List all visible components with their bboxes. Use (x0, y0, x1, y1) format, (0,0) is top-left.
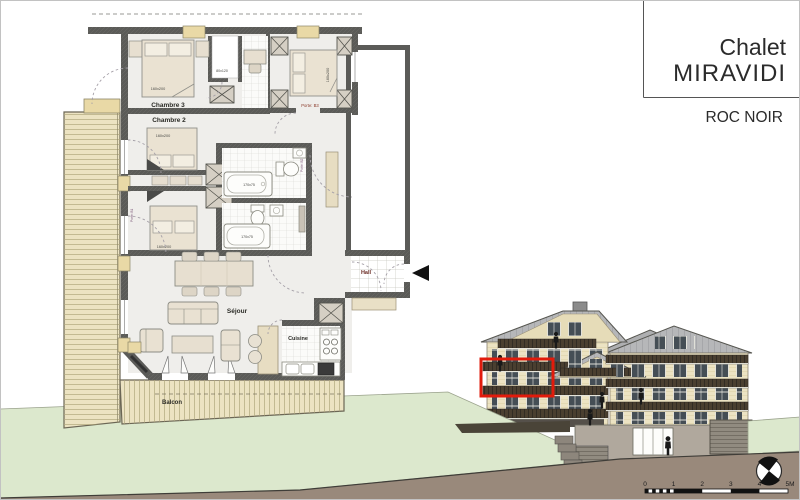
scale-tick-3: 3 (729, 481, 733, 488)
storage-room: 80x120 (210, 36, 238, 103)
room-label-chambre2: Chambre 2 (152, 117, 186, 124)
plan-canvas: 0 1 2 3 4 5M Balcon (0, 0, 800, 500)
dining-table (175, 252, 253, 296)
wardrobe-icon (271, 90, 288, 108)
nightstand (196, 41, 209, 57)
corridor-cabinet (326, 152, 338, 207)
right-band-2 (606, 379, 748, 388)
sink-unit (282, 362, 340, 376)
right-windows-rowB (616, 388, 742, 400)
sink-icon (293, 148, 306, 158)
right-gable-windows (655, 336, 695, 349)
toilet-icon (276, 162, 299, 176)
nightstand (129, 41, 142, 57)
title-block: Chalet MIRAVIDI ROC NOIR (644, 0, 800, 126)
entrance-arrow-icon (412, 265, 429, 281)
bed-dim-label: 160x200 (156, 134, 171, 138)
desk (244, 50, 266, 64)
project-name: MIRAVIDI (673, 60, 786, 87)
desk-nook (242, 36, 268, 108)
left-balcony (64, 99, 120, 428)
chair (249, 64, 261, 73)
cooktop-icon (320, 328, 341, 360)
double-bed (150, 206, 197, 250)
right-band-1 (606, 355, 748, 364)
scale-tick-0: 0 (643, 481, 647, 488)
floor-plan: Balcon (64, 14, 429, 428)
balcony-planter (84, 99, 120, 113)
slatted-gate (710, 420, 752, 454)
door-gap (296, 108, 320, 113)
bed-dim-label: 160x200 (151, 87, 166, 91)
drawing-sheet: 0 1 2 3 4 5M Balcon (0, 0, 800, 500)
door-label-b1: Porte: B1 (130, 208, 134, 222)
room-hall: Hall (351, 256, 404, 310)
room-label-balcon: Balcon (162, 400, 182, 406)
balcony-band-3 (483, 386, 608, 395)
scale-tick-2: 2 (700, 481, 704, 488)
grass-right (748, 417, 800, 454)
radiator (299, 206, 305, 232)
bathroom-1: 170x75 (222, 148, 306, 198)
attic-windows (540, 322, 582, 336)
tub-dim-label: 170x75 (241, 235, 253, 239)
wardrobe-icon (210, 86, 234, 103)
room-label-chambre3: Chambre 3 (151, 102, 185, 109)
toilet-icon (251, 205, 264, 226)
bed-dim-label: 160x200 (157, 245, 172, 249)
attic-balcony (498, 339, 596, 348)
bed-dim-label: 160x200 (326, 68, 330, 83)
right-band-3 (606, 402, 748, 411)
scale-tick-1: 1 (672, 481, 676, 488)
tub-dim-label: 170x75 (243, 183, 255, 187)
bar-stool (249, 335, 262, 348)
shower-dim-label: 80x120 (216, 69, 228, 73)
door-label-b3: Porte: B3 (301, 103, 319, 108)
double-bed (147, 128, 197, 170)
coffee-table (172, 336, 213, 353)
wardrobe-icon (319, 303, 343, 323)
side-sofa (221, 330, 240, 361)
armchair (140, 329, 163, 352)
wardrobe-icon (337, 37, 352, 55)
room-label-hall: Hall (361, 270, 372, 276)
right-windows-rowA (616, 364, 742, 377)
project-title: Chalet (720, 34, 787, 60)
room-label-cuisine: Cuisine (288, 336, 308, 342)
bar-stool (249, 351, 262, 364)
room-label-sejour: Séjour (227, 308, 248, 315)
sink-icon (270, 205, 283, 216)
wardrobe-icon (337, 90, 352, 108)
left-windows-row3 (492, 396, 604, 409)
sofa (168, 302, 218, 324)
scale-tick-5: 5M (785, 481, 794, 488)
wardrobe-icon (271, 37, 288, 55)
program-name: ROC NOIR (706, 109, 784, 126)
entry-mat (352, 298, 396, 310)
door-label-b2: Porte: B2 (300, 158, 304, 172)
